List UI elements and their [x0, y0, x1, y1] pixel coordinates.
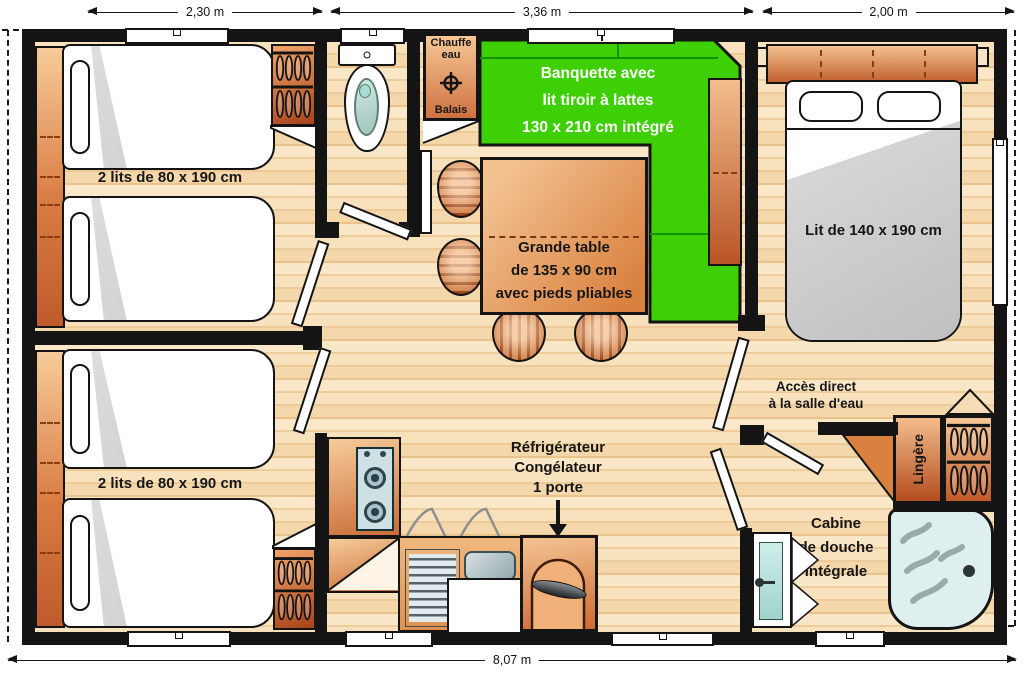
bedroom2-wardrobe: [273, 548, 316, 630]
dimension-line-middle: 3,36 m: [331, 12, 753, 13]
pillow: [70, 364, 90, 454]
bedrooms-divider-wall: [22, 331, 322, 345]
bathroom-mid-wall: [893, 503, 994, 512]
window: [345, 631, 433, 647]
bedroom1-beds-label: 2 lits de 80 x 190 cm: [72, 169, 268, 186]
single-bed: [62, 349, 275, 469]
single-bed: [62, 196, 275, 322]
pillow: [799, 91, 863, 122]
right-guide-dashed-line: [1014, 30, 1016, 626]
closet-corner-line: [423, 121, 479, 145]
dimension-label: 2,00 m: [861, 5, 915, 19]
floor-plan: 2,30 m 3,36 m 2,00 m 8,07 m 2 lits de 80…: [0, 0, 1024, 675]
door-pivot: [738, 315, 765, 331]
dimension-label: 3,36 m: [515, 5, 569, 19]
bathroom-corner-shelf: [843, 435, 897, 505]
fridge-label: Réfrigérateur Congélateur 1 porte: [496, 438, 620, 498]
bathroom-wardrobe: [943, 415, 994, 504]
bathroom-top-wall: [818, 422, 898, 435]
dish-rack-icon: [398, 506, 524, 540]
hall-wall-upper: [315, 42, 327, 238]
stove-counter: [327, 437, 401, 537]
pillow: [70, 515, 90, 611]
bathroom-access-label: Accès direct à la salle d'eau: [752, 378, 880, 412]
dining-table: Grande table de 135 x 90 cm avec pieds p…: [480, 157, 648, 315]
water-heater-closet: Chauffe eau Balais: [423, 33, 479, 121]
dimension-label: 2,30 m: [178, 5, 232, 19]
kitchen-corner-unit: [327, 537, 401, 593]
linen-label: Lingère: [910, 434, 926, 485]
entry-threshold: [611, 632, 714, 646]
pillow: [877, 91, 941, 122]
bathroom-left-wall: [740, 528, 752, 632]
fridge-arrowhead-icon: [549, 524, 567, 537]
window: [527, 28, 675, 44]
door-pivot: [315, 222, 339, 238]
master-overhead-cabinet: [766, 44, 978, 84]
dimension-line-overall: 8,07 m: [8, 660, 1016, 661]
bedroom2-beds-label: 2 lits de 80 x 190 cm: [72, 475, 268, 492]
corner-shelf: [273, 524, 316, 548]
window: [340, 28, 405, 44]
bedroom1-side-cabinet: [35, 46, 65, 328]
window: [125, 28, 229, 44]
wc-wall: [407, 42, 420, 227]
banquette-label: Banquette avec lit tiroir à lattes 130 x…: [486, 60, 710, 141]
banquette-cabinet: [708, 78, 742, 266]
hanger-rail-icon: [946, 418, 991, 501]
top-left-guide-dash: [2, 29, 19, 31]
table-label: Grande table de 135 x 90 cm avec pieds p…: [483, 236, 645, 305]
window: [815, 631, 885, 647]
wardrobe-roof-line: [946, 389, 994, 415]
pillow: [70, 212, 90, 306]
master-bed-label: Lit de 140 x 190 cm: [787, 222, 960, 239]
single-bed: [62, 44, 275, 170]
living-master-wall: [745, 42, 758, 320]
double-bed: Lit de 140 x 190 cm: [785, 80, 962, 342]
shower-tray-icon: [888, 508, 994, 630]
fridge-arrow-icon: [556, 500, 560, 524]
valve-icon: [439, 71, 463, 95]
open-door-leaf: [420, 150, 432, 234]
pillow: [70, 60, 90, 154]
toilet-tank: [338, 44, 396, 66]
broom-label: Balais: [435, 104, 467, 116]
fridge: [520, 535, 598, 632]
sink-icon: [464, 551, 516, 581]
cooktop-icon: [356, 447, 394, 531]
dimension-line-right: 2,00 m: [763, 12, 1014, 13]
hanger-rail-icon: [275, 550, 313, 627]
bedroom2-side-cabinet: [35, 350, 65, 628]
window: [992, 138, 1008, 306]
kitchen-worktop-block: [447, 578, 523, 634]
hall-wall-lower: [315, 433, 327, 632]
window: [127, 631, 231, 647]
washbasin-icon: [752, 532, 792, 628]
hanger-rail-icon: [273, 46, 313, 123]
linen-closet: Lingère: [893, 415, 943, 504]
water-heater-label: Chauffe eau: [431, 38, 472, 61]
basin-side-shelf: [792, 538, 818, 626]
left-guide-dashed-line: [7, 30, 9, 642]
single-bed: [62, 498, 275, 628]
dimension-label: 8,07 m: [485, 653, 539, 667]
bedroom1-wardrobe: [271, 44, 316, 126]
dimension-line-left: 2,30 m: [88, 12, 322, 13]
corner-shelf: [271, 126, 316, 150]
